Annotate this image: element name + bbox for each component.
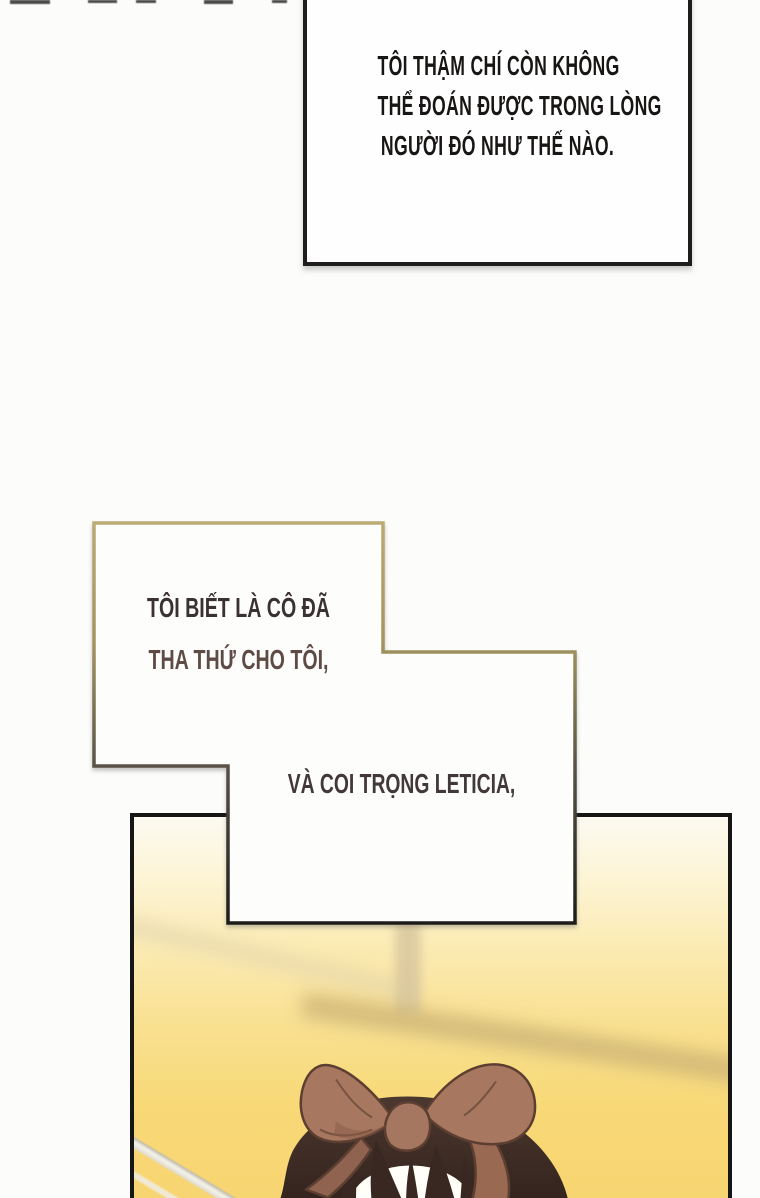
character-illustration [276, 1047, 576, 1198]
art-fragment [204, 0, 233, 4]
blurred-pole [395, 923, 421, 1015]
speech-text-top: TÔI THẬM CHÍ CÒN KHÔNG THỂ ĐOÁN ĐƯỢC TRO… [377, 46, 617, 166]
bow-knot [385, 1102, 430, 1150]
railing-bar [130, 1134, 261, 1198]
speech-line: TÔI BIẾT LÀ CÔ ĐÃ [137, 582, 339, 634]
speech-line: VÀ COI TRỌNG LETICIA, [282, 764, 521, 804]
speech-line: TÔI THẬM CHÍ CÒN KHÔNG [377, 46, 617, 86]
art-fragment [272, 0, 287, 3]
speech-line: THA THỨ CHO TÔI, [137, 634, 339, 686]
speech-text-middle-lower: VÀ COI TRỌNG LETICIA, [282, 764, 521, 804]
speech-line: THỂ ĐOÁN ĐƯỢC TRONG LÒNG [377, 86, 617, 126]
speech-text-middle-upper: TÔI BIẾT LÀ CÔ ĐÃ THA THỨ CHO TÔI, [137, 582, 339, 686]
comic-page: TÔI BIẾT LÀ CÔ ĐÃ THA THỨ CHO TÔI, VÀ CO… [0, 0, 760, 1198]
art-fragment [88, 0, 117, 3]
speech-line: NGƯỜI ĐÓ NHƯ THẾ NÀO. [377, 126, 617, 166]
art-fragment [136, 0, 156, 3]
art-fragment [10, 0, 50, 4]
speech-box-middle [88, 517, 582, 931]
speech-box-top: TÔI THẬM CHÍ CÒN KHÔNG THỂ ĐOÁN ĐƯỢC TRO… [303, 0, 692, 266]
